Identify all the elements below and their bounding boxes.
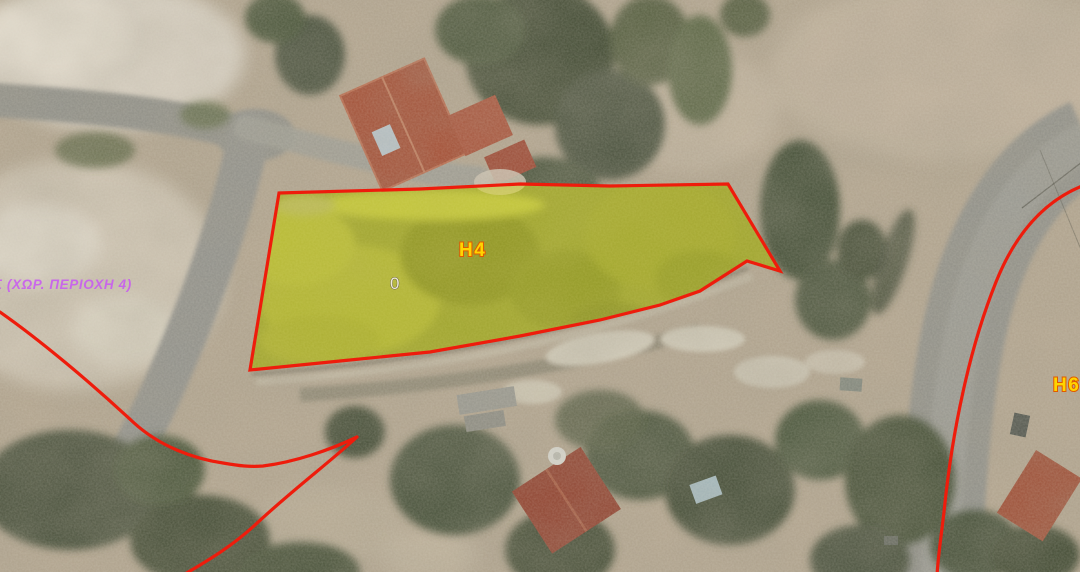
parcel-label-h4: H4 — [459, 240, 486, 261]
point-marker-zero: 0 — [390, 274, 399, 293]
zone-annotation: Σ (ΧΩΡ. ΠΕΡΙΟΧΗ 4) — [0, 277, 132, 292]
parcel-label-h6: H6 — [1053, 375, 1080, 396]
map-viewport[interactable]: H4 H6 0 Σ (ΧΩΡ. ΠΕΡΙΟΧΗ 4) — [0, 0, 1080, 572]
